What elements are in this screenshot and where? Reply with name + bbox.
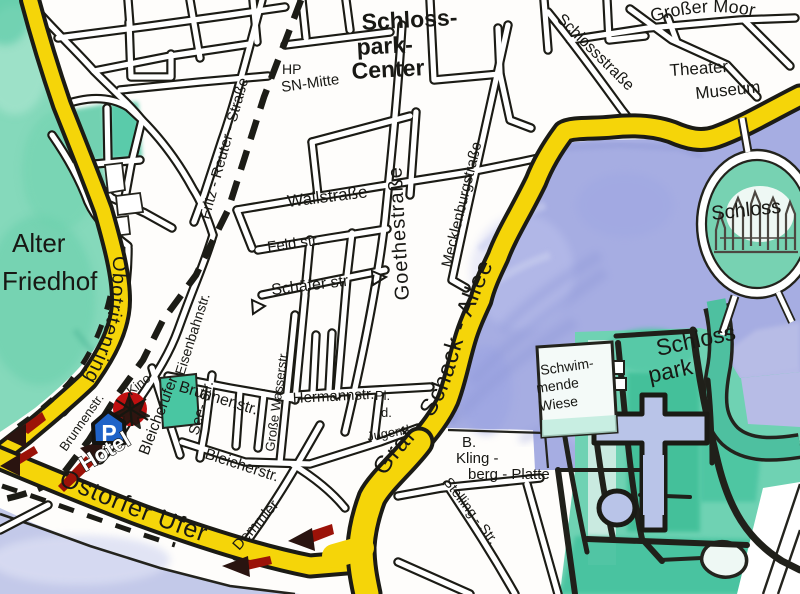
svg-text:Center: Center xyxy=(351,54,425,84)
svg-text:Kling -: Kling - xyxy=(456,450,499,467)
svg-text:B.: B. xyxy=(462,434,476,451)
svg-text:Pl.: Pl. xyxy=(375,388,390,403)
svg-text:berg - Platte: berg - Platte xyxy=(468,466,550,483)
svg-text:Alter: Alter xyxy=(12,228,66,258)
svg-text:d.: d. xyxy=(381,405,392,420)
svg-text:Friedhof: Friedhof xyxy=(2,266,98,296)
svg-text:HP: HP xyxy=(282,61,301,77)
